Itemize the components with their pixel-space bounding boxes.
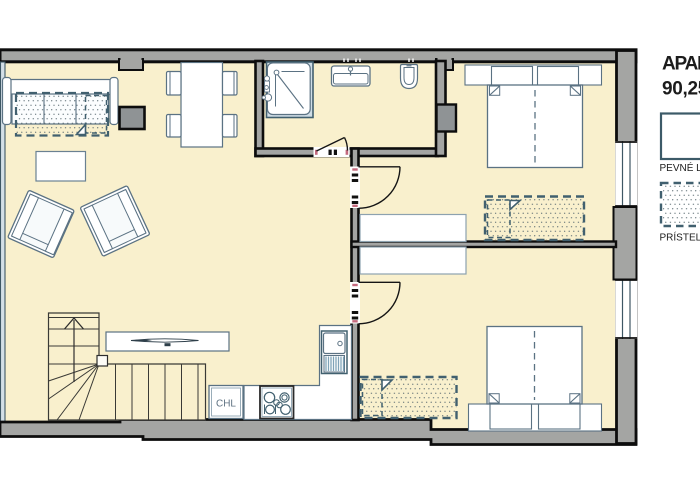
- svg-text:PRÍSTELKY: PRÍSTELKY: [660, 231, 700, 244]
- svg-text:APARTMÁN: APARTMÁN: [662, 53, 700, 75]
- svg-text:90,25 m²: 90,25 m²: [662, 79, 700, 100]
- svg-text:PEVNÉ LÔŽKÁ: PEVNÉ LÔŽKÁ: [660, 161, 700, 174]
- svg-text:CHL: CHL: [216, 399, 236, 410]
